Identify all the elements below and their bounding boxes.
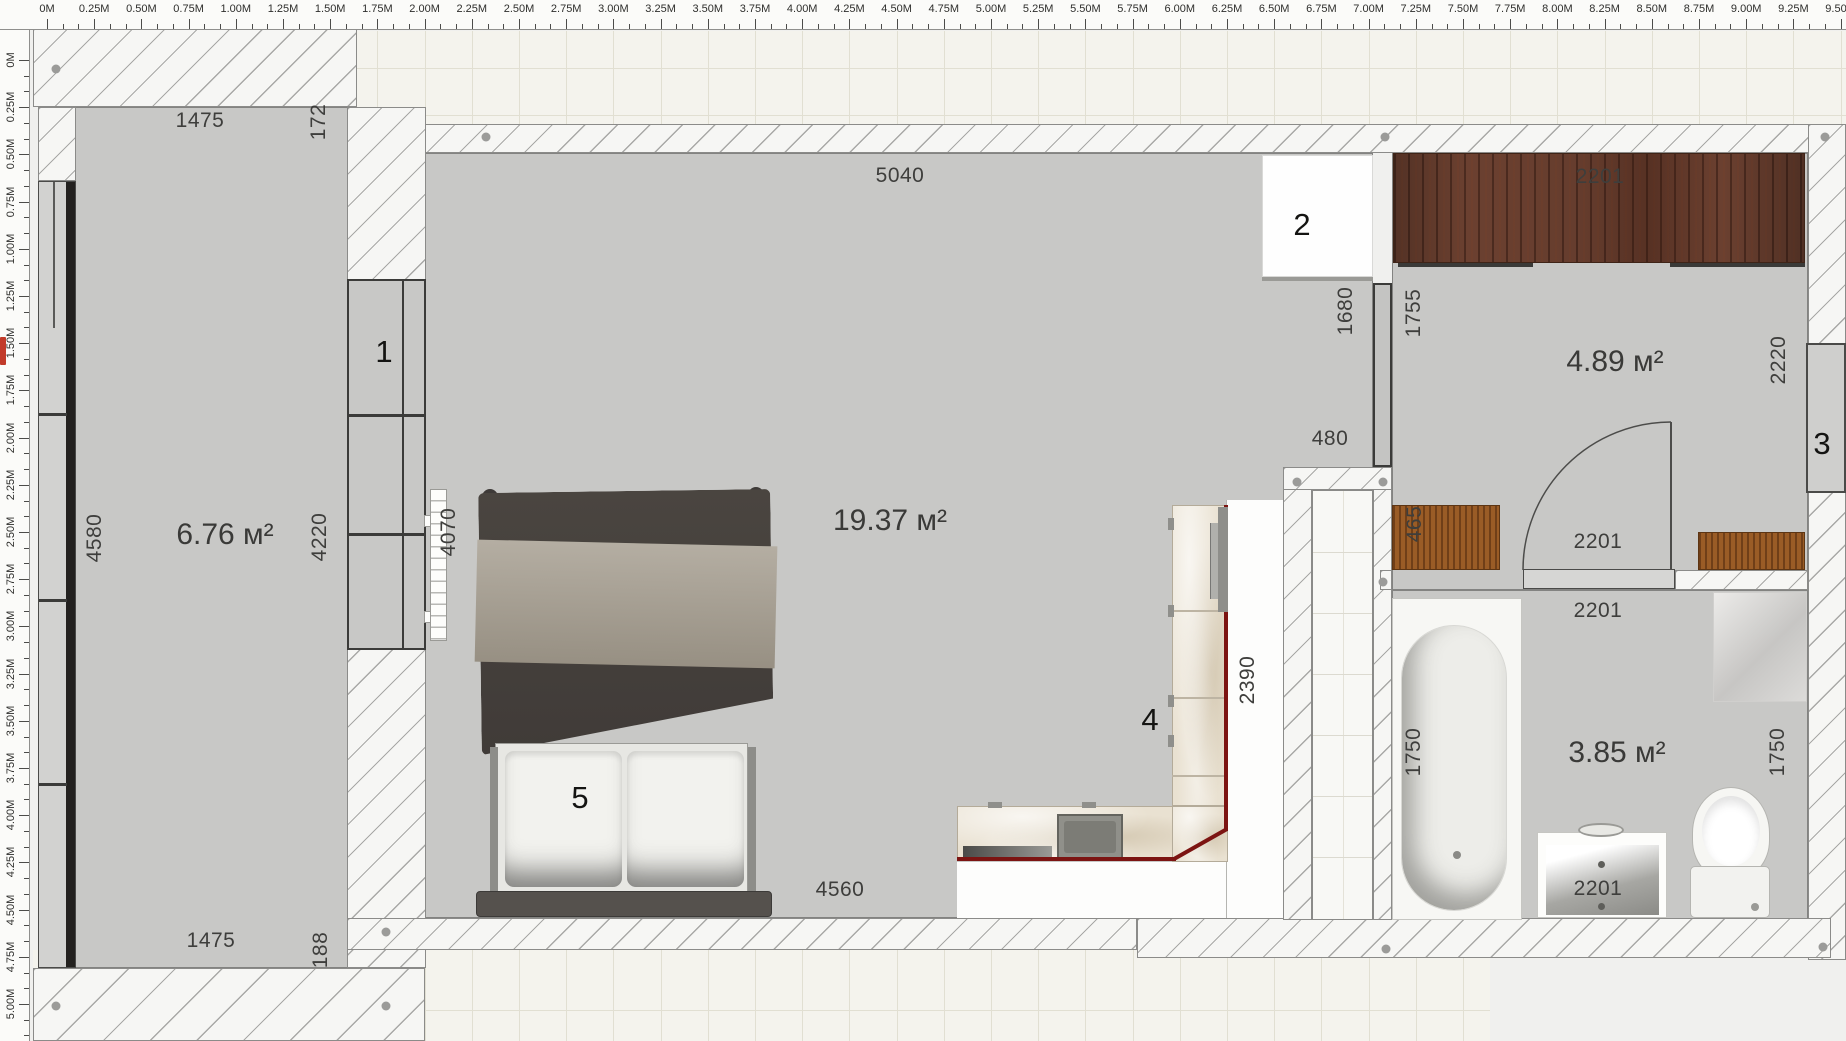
wall-pin — [1821, 133, 1830, 142]
ruler-minor-tick — [204, 24, 205, 29]
ruler-minor-tick — [78, 24, 79, 29]
counter-seam — [1172, 610, 1224, 612]
kitchen-niche-2390 — [1226, 500, 1283, 918]
ruler-minor-tick — [645, 24, 646, 29]
bed-headboard — [476, 891, 772, 917]
ruler-tick — [1793, 19, 1794, 29]
ruler-cursor-mark — [0, 337, 6, 365]
tile-line — [944, 950, 945, 1041]
ruler-minor-tick — [24, 359, 29, 360]
bed[interactable] — [476, 485, 776, 921]
tile-line — [1841, 31, 1842, 124]
ruler-minor-tick — [975, 24, 976, 29]
tile-line — [661, 950, 662, 1041]
ruler-label: 4.25M — [5, 842, 17, 882]
ruler-label: 3.75M — [740, 3, 771, 15]
room-area-label: 3.85 м² — [1568, 736, 1665, 770]
mirror-cabinet[interactable] — [1713, 592, 1807, 702]
wall-pin — [1379, 478, 1388, 487]
ruler-minor-tick — [126, 24, 127, 29]
ruler-tick — [755, 19, 756, 29]
tile-line — [1133, 31, 1134, 124]
ruler-label: 2.25M — [457, 3, 488, 15]
tile-line — [519, 31, 520, 124]
ruler-tick — [1274, 19, 1275, 29]
ruler-minor-tick — [881, 24, 882, 29]
cabinet-handle — [1168, 605, 1174, 617]
tile-line — [802, 950, 803, 1041]
cabinet-handle — [988, 802, 1002, 808]
ruler-tick — [1841, 19, 1842, 29]
ruler-minor-tick — [24, 548, 29, 549]
pillow — [627, 751, 744, 887]
pillow — [505, 751, 622, 887]
ventilation-shaft — [1312, 490, 1373, 920]
ruler-label: 2.75M — [551, 3, 582, 15]
ruler-tick — [19, 768, 29, 769]
ruler-minor-tick — [393, 24, 394, 29]
ruler-label: 4.00M — [5, 795, 17, 835]
dimension-label: 1750 — [1402, 728, 1426, 777]
ruler-label: 0.25M — [5, 87, 17, 127]
wall-pin — [1819, 943, 1828, 952]
wall-pin — [1382, 945, 1391, 954]
tile-line — [897, 31, 898, 124]
tile-line — [1085, 950, 1086, 1041]
dimension-label: 2220 — [1767, 336, 1791, 385]
ruler-tick — [1133, 19, 1134, 29]
ruler-minor-tick — [550, 24, 551, 29]
toilet-flush — [1751, 903, 1759, 911]
ruler-minor-tick — [24, 752, 29, 753]
tile-line — [1557, 31, 1558, 124]
wall-pin — [52, 1002, 61, 1011]
ruler-minor-tick — [1432, 24, 1433, 29]
dimension-label: 1755 — [1402, 289, 1426, 338]
ruler-tick — [236, 19, 237, 29]
ruler-label: 2.00M — [409, 3, 440, 15]
ruler-minor-tick — [1479, 24, 1480, 29]
ruler-label: 1.50M — [5, 323, 17, 363]
ruler-minor-tick — [314, 24, 315, 29]
window-frame — [66, 182, 75, 967]
ruler-minor-tick — [252, 24, 253, 29]
bed-rail — [490, 747, 498, 893]
wall-pin — [52, 65, 61, 74]
ruler-minor-tick — [24, 611, 29, 612]
object-marker[interactable]: 5 — [571, 780, 588, 816]
ruler-label: 1.50M — [315, 3, 346, 15]
ruler-tick — [19, 107, 29, 108]
kitchen-sink[interactable] — [1057, 814, 1123, 860]
ruler-tick — [19, 862, 29, 863]
tile-line — [1274, 31, 1275, 124]
ruler-minor-tick — [786, 24, 787, 29]
ruler-minor-tick — [1526, 24, 1527, 29]
window-divider — [39, 783, 67, 786]
ruler-minor-tick — [1164, 24, 1165, 29]
tile-line — [1274, 950, 1275, 1041]
ruler-tick — [1416, 19, 1417, 29]
ruler-label: 3.50M — [5, 701, 17, 741]
ruler-label: 4.50M — [881, 3, 912, 15]
ruler-tick — [1652, 19, 1653, 29]
wall-bottom-right — [1137, 918, 1831, 958]
ruler-minor-tick — [676, 24, 677, 29]
ruler-label: 2.00M — [5, 418, 17, 458]
ruler-tick — [708, 19, 709, 29]
ruler-minor-tick — [928, 24, 929, 29]
ruler-minor-tick — [63, 24, 64, 29]
ruler-label: 4.75M — [5, 937, 17, 977]
room-area-label: 6.76 м² — [176, 518, 273, 552]
floor-plan-canvas[interactable]: 1475172504022011680175522204804654580422… — [0, 0, 1846, 1041]
tile-line — [708, 950, 709, 1041]
dimension-label: 1475 — [187, 929, 236, 953]
dimension-label: 1750 — [1766, 728, 1790, 777]
object-marker[interactable]: 4 — [1141, 702, 1158, 738]
room-area-label: 4.89 м² — [1566, 345, 1663, 379]
ruler-minor-tick — [24, 375, 29, 376]
ruler-tick — [802, 19, 803, 29]
ruler-tick — [330, 19, 331, 29]
shelf-right[interactable] — [1698, 532, 1805, 570]
ruler-tick — [1369, 19, 1370, 29]
tile-line — [1321, 950, 1322, 1041]
dimension-label: 4220 — [308, 513, 332, 562]
ruler-tick — [19, 438, 29, 439]
ruler-minor-tick — [1007, 24, 1008, 29]
counter-edge-bottom — [957, 857, 1176, 861]
window-divider — [349, 533, 424, 536]
ruler-minor-tick — [1196, 24, 1197, 29]
wall-shaft-right — [1373, 467, 1392, 920]
ruler-tick — [47, 19, 48, 29]
ruler-minor-tick — [1117, 24, 1118, 29]
ruler-minor-tick — [267, 24, 268, 29]
ruler-tick — [19, 815, 29, 816]
tile-line — [1038, 31, 1039, 124]
ruler-tick — [849, 19, 850, 29]
ruler-minor-tick — [1683, 24, 1684, 29]
sink-faucet — [1578, 823, 1624, 837]
window-rail — [53, 182, 55, 328]
tile-line — [897, 950, 898, 1041]
ruler-label: 2.75M — [5, 559, 17, 599]
ruler-minor-tick — [1447, 24, 1448, 29]
ruler-minor-tick — [912, 24, 913, 29]
ruler-minor-tick — [1762, 24, 1763, 29]
ruler-label: 6.25M — [1212, 3, 1243, 15]
balcony-window[interactable] — [38, 181, 76, 968]
ruler-minor-tick — [24, 689, 29, 690]
ruler-label: 8.75M — [1684, 3, 1715, 15]
ruler-minor-tick — [865, 24, 866, 29]
bathtub-drain — [1453, 851, 1461, 859]
ruler-tick — [1699, 19, 1700, 29]
toilet-seat — [1702, 796, 1760, 866]
ruler-label: 6.00M — [1165, 3, 1196, 15]
ruler-minor-tick — [1400, 24, 1401, 29]
ruler-minor-tick — [1054, 24, 1055, 29]
bed-rail — [748, 747, 756, 893]
ruler-minor-tick — [24, 658, 29, 659]
tile-line — [355, 68, 1846, 69]
tile-line — [1321, 31, 1322, 124]
ruler-tick — [1038, 19, 1039, 29]
tile-line — [1227, 31, 1228, 124]
ruler-label: 7.50M — [1448, 3, 1479, 15]
ruler-label: 7.00M — [1353, 3, 1384, 15]
ruler-tick — [19, 579, 29, 580]
wall-balcony-top — [33, 28, 357, 107]
ruler-label: 3.25M — [5, 654, 17, 694]
ruler-horizontal: 0M0.25M0.50M0.75M1.00M1.25M1.50M1.75M2.0… — [0, 0, 1846, 30]
wall-window-corner — [38, 107, 76, 181]
entry-door-2-sill — [1262, 277, 1373, 281]
ruler-tick — [19, 1004, 29, 1005]
ruler-label: 7.75M — [1495, 3, 1526, 15]
ruler-minor-tick — [24, 784, 29, 785]
ruler-minor-tick — [24, 1020, 29, 1021]
ruler-minor-tick — [24, 799, 29, 800]
tile-line — [1416, 31, 1417, 124]
dimension-label: 4070 — [437, 508, 461, 557]
ruler-minor-tick — [24, 831, 29, 832]
ruler-minor-tick — [1306, 24, 1307, 29]
ruler-tick — [519, 19, 520, 29]
tile-line — [613, 950, 614, 1041]
ruler-minor-tick — [1290, 24, 1291, 29]
wall-bracket — [1218, 507, 1228, 612]
ruler-minor-tick — [24, 469, 29, 470]
tile-line — [1133, 950, 1134, 1041]
sink-drain — [1598, 903, 1605, 910]
ruler-label: 4.50M — [5, 890, 17, 930]
ruler-tick — [19, 674, 29, 675]
ruler-minor-tick — [724, 24, 725, 29]
ruler-minor-tick — [24, 233, 29, 234]
dimension-label: 465 — [1403, 506, 1427, 543]
ruler-label: 3.00M — [5, 606, 17, 646]
wall-pin — [1381, 133, 1390, 142]
wall-hall-bath-right — [1675, 570, 1808, 590]
ruler-minor-tick — [409, 24, 410, 29]
ruler-minor-tick — [24, 925, 29, 926]
ruler-label: 3.25M — [645, 3, 676, 15]
ruler-label: 1.75M — [5, 370, 17, 410]
ruler-minor-tick — [1353, 24, 1354, 29]
ruler-minor-tick — [24, 123, 29, 124]
dimension-label: 1475 — [176, 109, 225, 133]
tile-line — [1227, 950, 1228, 1041]
tile-line — [1510, 31, 1511, 124]
ruler-tick — [1180, 19, 1181, 29]
ruler-tick — [1605, 19, 1606, 29]
shaft-line — [1313, 796, 1372, 797]
ruler-minor-tick — [24, 280, 29, 281]
ruler-minor-tick — [157, 24, 158, 29]
dimension-label: 1680 — [1334, 287, 1358, 336]
ruler-minor-tick — [24, 186, 29, 187]
ruler-tick — [19, 296, 29, 297]
object-marker[interactable]: 2 — [1293, 207, 1310, 243]
ruler-tick — [19, 60, 29, 61]
tile-line — [355, 115, 1846, 116]
ruler-minor-tick — [1148, 24, 1149, 29]
ruler-minor-tick — [24, 406, 29, 407]
tile-line — [708, 31, 709, 124]
ruler-tick — [425, 19, 426, 29]
ruler-minor-tick — [1589, 24, 1590, 29]
window-divider — [349, 414, 424, 417]
kitchen-counter-corner[interactable] — [1172, 806, 1228, 862]
ruler-minor-tick — [110, 24, 111, 29]
tile-line — [755, 950, 756, 1041]
ruler-minor-tick — [24, 422, 29, 423]
ruler-label: 9.00M — [1731, 3, 1762, 15]
ruler-label: 6.50M — [1259, 3, 1290, 15]
bathroom-sink[interactable] — [1537, 832, 1667, 918]
sink-drain — [1598, 861, 1605, 868]
tile-line — [1038, 950, 1039, 1041]
toilet-tank[interactable] — [1690, 866, 1770, 918]
tile-line — [519, 950, 520, 1041]
dimension-label: 2390 — [1236, 656, 1260, 705]
wall-balcony-bottom — [33, 968, 425, 1041]
ruler-tick — [1746, 19, 1747, 29]
tile-line — [849, 950, 850, 1041]
ruler-label: 8.00M — [1542, 3, 1573, 15]
ruler-minor-tick — [24, 973, 29, 974]
wall-right-outer — [1808, 124, 1846, 960]
ruler-tick — [1085, 19, 1086, 29]
counter-seam — [1172, 697, 1224, 699]
tile-line — [472, 950, 473, 1041]
dimension-label: 172 — [307, 104, 331, 141]
ruler-tick — [1463, 19, 1464, 29]
ruler-minor-tick — [629, 24, 630, 29]
window-mullion — [402, 281, 404, 648]
ruler-tick — [283, 19, 284, 29]
ruler-minor-tick — [173, 24, 174, 29]
ruler-minor-tick — [24, 501, 29, 502]
ruler-minor-tick — [24, 265, 29, 266]
ruler-label: 1.25M — [5, 276, 17, 316]
ruler-minor-tick — [692, 24, 693, 29]
ruler-minor-tick — [346, 24, 347, 29]
wall-bottom-main — [347, 918, 1137, 950]
kitchen-floor-white — [957, 862, 1226, 918]
ruler-minor-tick — [24, 988, 29, 989]
ruler-minor-tick — [1636, 24, 1637, 29]
ruler-minor-tick — [24, 217, 29, 218]
ruler-tick — [19, 957, 29, 958]
dimension-label: 4580 — [83, 514, 107, 563]
ruler-label: 5.75M — [1117, 3, 1148, 15]
cabinet-handle — [1168, 695, 1174, 707]
room-area-label: 19.37 м² — [833, 504, 947, 538]
ruler-label: 8.25M — [1589, 3, 1620, 15]
wall-pin — [1379, 578, 1388, 587]
ruler-minor-tick — [1715, 24, 1716, 29]
ruler-tick — [19, 390, 29, 391]
cabinet-handle — [1168, 735, 1174, 747]
ruler-minor-tick — [24, 1035, 29, 1036]
tile-line — [755, 31, 756, 124]
shaft-line — [1313, 552, 1372, 553]
ruler-label: 9.25M — [1778, 3, 1809, 15]
bathroom-door-leaf[interactable] — [1523, 569, 1675, 589]
ruler-minor-tick — [1070, 24, 1071, 29]
wardrobe-door-line — [1398, 263, 1533, 267]
entry-door-2[interactable] — [1262, 155, 1373, 277]
ruler-tick — [944, 19, 945, 29]
ruler-minor-tick — [1022, 24, 1023, 29]
ruler-minor-tick — [24, 139, 29, 140]
object-marker[interactable]: 1 — [375, 334, 392, 370]
ruler-minor-tick — [1494, 24, 1495, 29]
ruler-minor-tick — [535, 24, 536, 29]
ruler-label: 3.75M — [5, 748, 17, 788]
tile-line — [472, 31, 473, 124]
door-jamb — [1373, 283, 1392, 467]
tile-line — [566, 950, 567, 1041]
ruler-label: 1.00M — [5, 229, 17, 269]
tile-line — [566, 31, 567, 124]
object-marker[interactable]: 3 — [1813, 426, 1830, 462]
ruler-minor-tick — [488, 24, 489, 29]
ruler-tick — [472, 19, 473, 29]
ruler-tick — [897, 19, 898, 29]
ruler-label: 9.50M — [1825, 3, 1846, 15]
ruler-label: 5.00M — [976, 3, 1007, 15]
ruler-minor-tick — [456, 24, 457, 29]
ruler-minor-tick — [299, 24, 300, 29]
ruler-label: 8.50M — [1637, 3, 1668, 15]
wall-main-top — [355, 124, 1846, 153]
ruler-label: 2.50M — [5, 512, 17, 552]
ruler-label: 2.50M — [504, 3, 535, 15]
ruler-minor-tick — [24, 327, 29, 328]
tile-line — [1416, 950, 1417, 1041]
wardrobe-door-line — [1670, 263, 1805, 267]
ruler-minor-tick — [24, 878, 29, 879]
ruler-minor-tick — [24, 705, 29, 706]
ruler-tick — [661, 19, 662, 29]
ruler-tick — [141, 19, 142, 29]
shaft-line — [1313, 674, 1372, 675]
tile-line — [991, 31, 992, 124]
ruler-tick — [991, 19, 992, 29]
ruler-minor-tick — [362, 24, 363, 29]
ruler-tick — [19, 154, 29, 155]
window-3[interactable] — [1806, 343, 1846, 493]
tile-line — [1699, 31, 1700, 124]
dimension-label: 2201 — [1574, 877, 1623, 901]
ruler-label: 0.75M — [5, 182, 17, 222]
ruler-label: 0.75M — [173, 3, 204, 15]
ruler-label: 0.25M — [79, 3, 110, 15]
tile-line — [1369, 31, 1370, 124]
ruler-label: 1.75M — [362, 3, 393, 15]
tile-line — [1793, 31, 1794, 124]
tile-line — [991, 950, 992, 1041]
tile-line — [1180, 31, 1181, 124]
tile-line — [613, 31, 614, 124]
ruler-minor-tick — [440, 24, 441, 29]
tile-line — [849, 31, 850, 124]
